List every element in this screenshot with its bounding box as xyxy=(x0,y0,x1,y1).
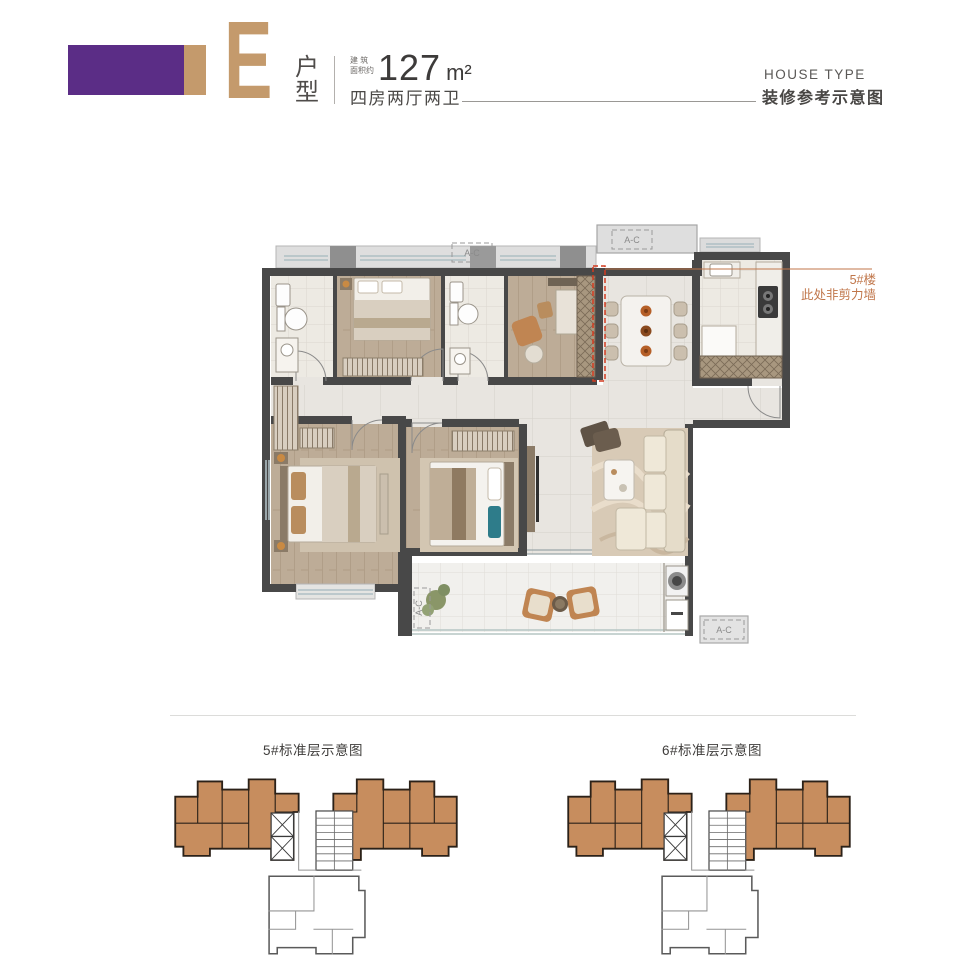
wall-bed2-living xyxy=(519,424,527,556)
table-setting xyxy=(641,306,652,357)
chair-cushion xyxy=(527,593,551,617)
pillow xyxy=(488,468,501,500)
house-type-en: HOUSE TYPE xyxy=(764,67,866,82)
wall-kitchen-top xyxy=(694,252,790,260)
sofa-seat xyxy=(644,436,666,472)
washer-drum-icon xyxy=(672,576,682,586)
toilet-tank xyxy=(450,303,458,325)
wall-bottom-left xyxy=(262,584,296,592)
area-value-group: 127 m² xyxy=(378,47,472,89)
headboard xyxy=(280,466,288,542)
pillow xyxy=(291,472,306,500)
area-unit: m² xyxy=(446,60,472,86)
table-decor xyxy=(611,469,617,475)
top-pier xyxy=(330,246,356,268)
wardrobe xyxy=(274,386,298,450)
ac-label: A-C xyxy=(414,600,424,616)
brand-logo-tan-block xyxy=(184,45,206,95)
chair-cushion xyxy=(571,591,594,614)
headboard xyxy=(504,462,514,546)
bed-runner xyxy=(348,466,360,542)
sink xyxy=(450,282,463,302)
kitchen-cabinets xyxy=(700,356,782,378)
sofa-back xyxy=(664,430,685,552)
ac-label: A-C xyxy=(464,248,480,258)
wardrobe xyxy=(300,428,334,448)
sofa-seat xyxy=(644,474,666,510)
lamp-icon xyxy=(277,542,285,550)
fridge xyxy=(702,326,736,356)
basin xyxy=(455,354,466,365)
annotation-line1: 5#楼 xyxy=(604,273,876,288)
area-prefix: 建 筑 面积约 xyxy=(350,56,376,76)
tv-console xyxy=(527,446,535,532)
standard-floor-plan-6 xyxy=(568,779,850,953)
pillow-teal xyxy=(488,506,501,538)
wardrobe xyxy=(343,358,423,376)
bed-runner xyxy=(452,468,466,540)
sofa-chaise xyxy=(616,508,646,550)
faucet xyxy=(671,612,683,615)
wall-bath1-bed3 xyxy=(333,276,337,377)
brand-logo-purple-block xyxy=(68,45,184,95)
pillow xyxy=(358,281,378,293)
bedroom3-furniture xyxy=(340,278,430,376)
entry-floor xyxy=(693,388,782,420)
wall-entry-bottom xyxy=(693,420,790,428)
pillow xyxy=(291,506,306,534)
coffee-table xyxy=(604,460,634,500)
table-decor xyxy=(619,484,627,492)
toilet-tank xyxy=(277,307,285,331)
ac-label: A-C xyxy=(716,625,732,635)
wall-balcony-west xyxy=(398,548,412,636)
shear-wall-annotation: 5#楼 此处非剪力墙 xyxy=(604,273,876,303)
top-window-ledge xyxy=(276,246,596,268)
area-prefix-line2: 面积约 xyxy=(350,66,376,76)
toilet-icon xyxy=(285,308,307,330)
standard-floor-plan-5 xyxy=(175,779,457,953)
wall-kitchen-bottom xyxy=(692,378,752,386)
tv-icon xyxy=(536,456,539,522)
master-bay-window xyxy=(296,584,375,599)
floorplan-graphics: A-C A-C A-C A-C xyxy=(0,0,980,974)
annotation-line2: 此处非剪力墙 xyxy=(604,288,876,303)
pillow xyxy=(382,281,402,293)
ottoman xyxy=(525,345,543,363)
room-layout-text: 四房两厅两卫 xyxy=(350,84,461,109)
lamp-icon xyxy=(277,454,285,462)
unit-type-label: 户型 xyxy=(295,56,321,105)
header-divider xyxy=(334,56,335,104)
wall-study-dining xyxy=(595,268,603,380)
basin xyxy=(281,344,293,356)
sofa-seat xyxy=(644,512,666,548)
top-pier xyxy=(560,246,586,268)
side-table-top xyxy=(555,599,565,609)
bed-runner xyxy=(354,318,430,328)
wardrobe xyxy=(452,431,514,451)
ac-label: A-C xyxy=(624,235,640,245)
bench xyxy=(380,474,388,534)
sink xyxy=(276,284,290,306)
toilet-icon xyxy=(458,304,478,324)
area-value: 127 xyxy=(378,47,441,89)
header-underline xyxy=(462,101,756,102)
decoration-subtitle: 装修参考示意图 xyxy=(762,84,885,108)
kitchen-window-ledge xyxy=(700,238,760,252)
area-prefix-line1: 建 筑 xyxy=(350,56,376,66)
wall-left xyxy=(262,268,270,592)
lamp-icon xyxy=(343,281,350,288)
shelf xyxy=(548,278,578,286)
floorplan-brochure-page: A-C A-C A-C A-C xyxy=(0,0,980,974)
plant-icon xyxy=(438,584,450,596)
section-separator xyxy=(170,715,856,716)
desk xyxy=(556,290,578,334)
wall-bath2-study xyxy=(504,276,508,377)
caption-building5: 5#标准层示意图 xyxy=(263,739,363,759)
dining-furniture xyxy=(605,296,687,366)
unit-letter: E xyxy=(224,6,272,116)
caption-building6: 6#标准层示意图 xyxy=(662,739,762,759)
